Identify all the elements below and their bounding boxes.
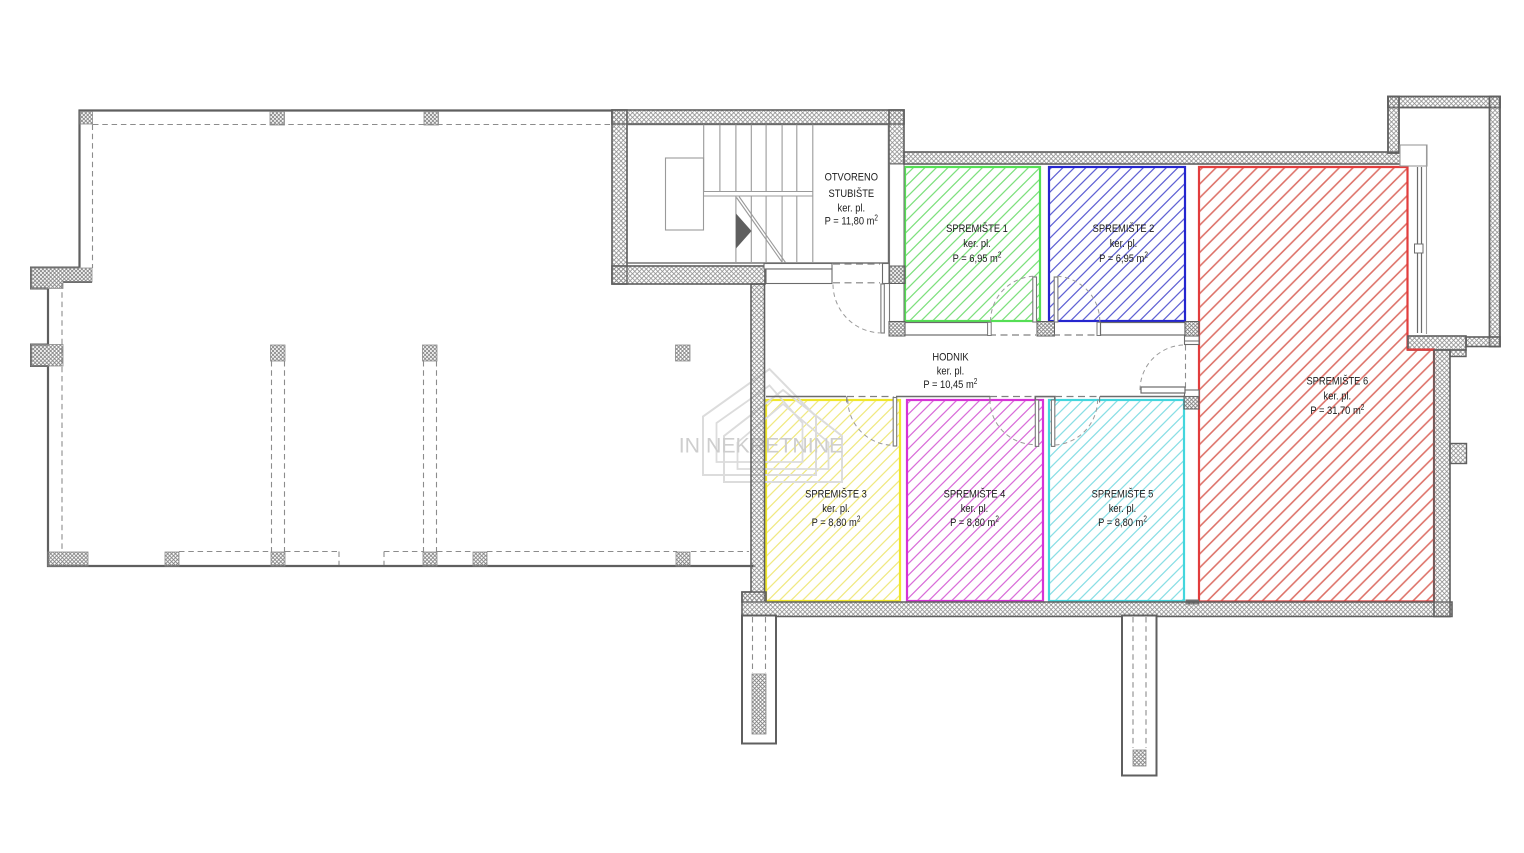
svg-text:ker. pl.: ker. pl. [963, 238, 990, 250]
svg-text:STUBIŠTE: STUBIŠTE [828, 186, 874, 200]
svg-text:OTVORENO: OTVORENO [825, 172, 878, 184]
svg-text:P = 11,80 m2: P = 11,80 m2 [825, 214, 878, 228]
svg-text:P = 6,95 m2: P = 6,95 m2 [953, 251, 1002, 265]
svg-text:ker. pl.: ker. pl. [1109, 503, 1136, 515]
svg-text:SPREMIŠTE 6: SPREMIŠTE 6 [1306, 373, 1368, 387]
svg-text:SPREMIŠTE 5: SPREMIŠTE 5 [1092, 487, 1154, 501]
svg-text:HODNIK: HODNIK [932, 352, 968, 364]
svg-text:SPREMIŠTE 3: SPREMIŠTE 3 [805, 487, 867, 501]
svg-text:P = 8,80 m2: P = 8,80 m2 [950, 515, 999, 529]
svg-text:ker. pl.: ker. pl. [822, 503, 849, 515]
svg-text:ker. pl.: ker. pl. [961, 503, 988, 515]
svg-text:SPREMIŠTE 4: SPREMIŠTE 4 [944, 487, 1006, 501]
svg-text:P = 8,80 m2: P = 8,80 m2 [1098, 515, 1147, 529]
svg-text:SPREMIŠTE 2: SPREMIŠTE 2 [1093, 221, 1155, 235]
svg-text:ker. pl.: ker. pl. [1324, 391, 1351, 403]
svg-text:P = 10,45 m2: P = 10,45 m2 [923, 377, 977, 391]
svg-text:ker. pl.: ker. pl. [1110, 238, 1137, 250]
svg-text:P = 31,70 m2: P = 31,70 m2 [1310, 403, 1364, 417]
svg-text:P = 6,95 m2: P = 6,95 m2 [1099, 251, 1148, 265]
svg-text:P = 8,80 m2: P = 8,80 m2 [812, 515, 861, 529]
svg-text:ker. pl.: ker. pl. [937, 366, 964, 378]
svg-text:SPREMIŠTE 1: SPREMIŠTE 1 [946, 221, 1008, 235]
svg-text:ker. pl.: ker. pl. [838, 203, 865, 215]
